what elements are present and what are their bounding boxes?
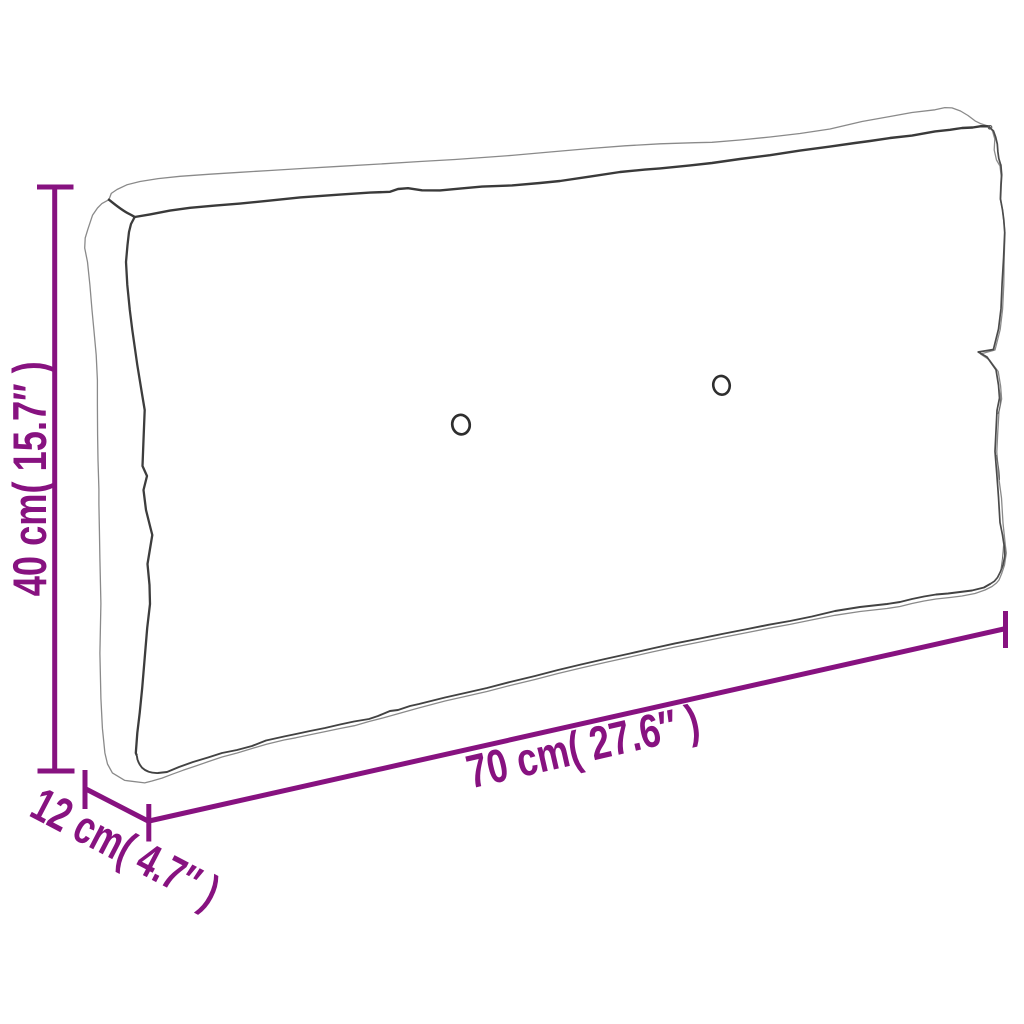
svg-text:40 cm( 15.7″ ): 40 cm( 15.7″ ) <box>3 361 56 596</box>
svg-text:12 cm( 4.7″ ): 12 cm( 4.7″ ) <box>23 777 228 918</box>
svg-text:70 cm( 27.6″ ): 70 cm( 27.6″ ) <box>461 694 704 799</box>
